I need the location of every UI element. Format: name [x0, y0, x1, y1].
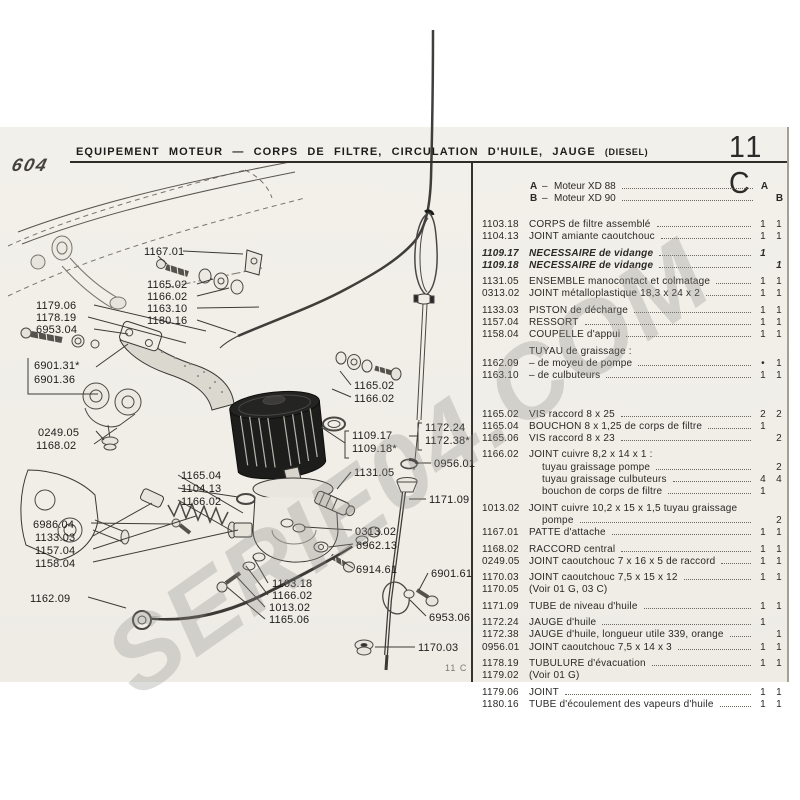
brand-604-logo: 604: [9, 155, 50, 176]
leader-dots: [657, 226, 751, 227]
qty-b: 1: [771, 370, 787, 381]
qty-a: •: [755, 358, 771, 369]
callout-1166.02: 1166.02: [272, 590, 312, 602]
qty-b: 4: [771, 474, 787, 485]
callout-1172.38: 1172.38*: [425, 435, 470, 447]
part-ref: 1133.03: [479, 305, 529, 316]
qty-a: 1: [755, 219, 771, 230]
table-row: TUYAU de graissage :: [479, 346, 787, 357]
qty-b: 1: [771, 305, 787, 316]
part-ref: 1178.19: [479, 658, 529, 669]
callout-1166.02: 1166.02: [354, 393, 394, 405]
leader-dots: [638, 365, 751, 366]
legend-col-a: A: [757, 181, 772, 193]
part-desc: VIS raccord 8 x 23: [529, 433, 615, 444]
part-desc: – de moyeu de pompe: [529, 358, 632, 369]
part-desc: (Voir 01 G, 03 C): [529, 584, 607, 595]
callout-1166.02: 1166.02: [147, 291, 187, 303]
qty-b: 1: [771, 629, 787, 640]
engine-legend: A – Moteur XD 88 A B – Moteur XD 90 B: [530, 181, 787, 205]
part-desc: JOINT cuivre 10,2 x 15 x 1,5 tuyau grais…: [529, 503, 738, 514]
part-desc: JAUGE d'huile: [529, 617, 596, 628]
leader-dots: [652, 665, 751, 666]
leader-dots: [678, 649, 751, 650]
table-row: 1178.19 TUBULURE d'évacuation 1 1: [479, 658, 787, 669]
part-ref: 1103.18: [479, 219, 529, 230]
central-raccord: [83, 383, 141, 450]
table-row: tuyau graissage culbuteurs 4 4: [479, 474, 787, 485]
qty-a: 1: [755, 687, 771, 698]
callout-6953.06: 6953.06: [429, 612, 470, 624]
part-desc: RACCORD central: [529, 544, 615, 555]
callout-6986.04: 6986.04: [33, 519, 74, 531]
table-row: 1179.06 JOINT 1 1: [479, 687, 787, 698]
footer-section-code: 11 C: [445, 663, 467, 673]
part-ref: 1162.09: [479, 358, 529, 369]
callout-1165.04: 1165.04: [181, 470, 221, 482]
qty-a: 1: [755, 601, 771, 612]
part-desc: PISTON de décharge: [529, 305, 628, 316]
page-title-rest: CORPS DE FILTRE, CIRCULATION D'HUILE, JA…: [254, 146, 596, 158]
qty-a: 1: [755, 288, 771, 299]
table-row: 1163.10 – de culbuteurs 1 1: [479, 370, 787, 381]
leader-dots: [673, 481, 751, 482]
part-ref: 1166.02: [479, 449, 529, 460]
table-row: 1013.02 JOINT cuivre 10,2 x 15 x 1,5 tuy…: [479, 503, 787, 514]
callout-1133.03: 1133.03: [35, 532, 75, 544]
leader-dots: [565, 694, 751, 695]
legend-row-a: A – Moteur XD 88 A: [530, 181, 787, 193]
leader-dots: [580, 522, 751, 523]
part-desc: (Voir 01 G): [529, 670, 580, 681]
part-desc: JOINT caoutchouc 7,5 x 15 x 12: [529, 572, 678, 583]
qty-b: 1: [771, 288, 787, 299]
leader-dots: [656, 469, 751, 470]
column-divider: [471, 163, 473, 682]
part-ref: 1170.05: [479, 584, 529, 595]
table-row: 0313.02 JOINT métalloplastique 18,3 x 24…: [479, 288, 787, 299]
part-ref: 1168.02: [479, 544, 529, 555]
callout-1157.04: 1157.04: [35, 545, 75, 557]
part-ref: 1179.06: [479, 687, 529, 698]
legend-col-b: B: [772, 193, 787, 205]
page-title-suffix: (DIESEL): [605, 147, 648, 157]
leader-dots: [634, 312, 751, 313]
part-ref: 1165.06: [479, 433, 529, 444]
part-desc: JOINT métalloplastique 18,3 x 24 x 2: [529, 288, 700, 299]
callout-1162.09: 1162.09: [30, 593, 70, 605]
part-desc: JOINT caoutchouc 7 x 16 x 5 de raccord: [529, 556, 715, 567]
qty-b: 1: [771, 527, 787, 538]
qty-b: 1: [771, 544, 787, 555]
legend-label: Moteur XD 88: [554, 181, 616, 193]
legend-label: Moteur XD 90: [554, 193, 616, 205]
legend-dash: –: [542, 193, 554, 205]
part-ref: 1163.10: [479, 370, 529, 381]
part-desc: TUBE d'écoulement des vapeurs d'huile: [529, 699, 714, 710]
callout-6901.36: 6901.36: [34, 374, 75, 386]
table-row: 0956.01 JOINT caoutchouc 7,5 x 14 x 3 1 …: [479, 642, 787, 653]
qty-a: 1: [755, 556, 771, 567]
part-ref: 1109.17: [479, 248, 529, 259]
page-title-dash: —: [232, 146, 244, 158]
part-desc: TUBULURE d'évacuation: [529, 658, 646, 669]
part-ref: 1167.01: [479, 527, 529, 538]
qty-b: 1: [771, 231, 787, 242]
qty-a: 1: [755, 572, 771, 583]
qty-b: 1: [771, 276, 787, 287]
callout-1166.02: 1166.02: [181, 496, 221, 508]
part-desc: TUYAU de graissage :: [529, 346, 632, 357]
qty-a: 1: [755, 248, 771, 259]
qty-b: 2: [771, 409, 787, 420]
qty-a: 1: [755, 642, 771, 653]
callout-1180.16: 1180.16: [147, 315, 187, 327]
part-ref: 0249.05: [479, 556, 529, 567]
callout-1103.18: 1103.18: [272, 578, 312, 590]
part-desc: JOINT caoutchouc 7,5 x 14 x 3: [529, 642, 672, 653]
qty-a: 1: [755, 421, 771, 432]
part-desc: ENSEMBLE manocontact et colmatage: [529, 276, 710, 287]
qty-b: 1: [771, 317, 787, 328]
part-ref: 1157.04: [479, 317, 529, 328]
callout-1168.02: 1168.02: [36, 440, 76, 452]
part-ref: 1013.02: [479, 503, 529, 514]
callout-6953.04: 6953.04: [36, 324, 77, 336]
part-ref: 1165.04: [479, 421, 529, 432]
table-row: 1170.03 JOINT caoutchouc 7,5 x 15 x 12 1…: [479, 572, 787, 583]
qty-a: 1: [755, 486, 771, 497]
leader-dots: [644, 608, 751, 609]
qty-a: 1: [755, 617, 771, 628]
part-ref: 1109.18: [479, 260, 529, 271]
legend-key: B: [530, 193, 542, 205]
table-row: 1165.02 VIS raccord 8 x 25 2 2: [479, 409, 787, 420]
leader-dots: [668, 493, 751, 494]
part-desc: bouchon de corps de filtre: [529, 486, 662, 497]
table-row: 1131.05 ENSEMBLE manocontact et colmatag…: [479, 276, 787, 287]
qty-b: 1: [771, 572, 787, 583]
plug-coupelle: [228, 522, 252, 538]
qty-b: 1: [771, 699, 787, 710]
callout-1013.02: 1013.02: [269, 602, 310, 614]
qty-b: 1: [771, 687, 787, 698]
part-desc: BOUCHON 8 x 1,25 de corps de filtre: [529, 421, 702, 432]
qty-b: 2: [771, 515, 787, 526]
leader-dots: [622, 200, 753, 201]
table-row: 1109.18 NECESSAIRE de vidange 1: [479, 260, 787, 271]
leader-dots: [661, 238, 751, 239]
table-row: 1171.09 TUBE de niveau d'huile 1 1: [479, 601, 787, 612]
qty-b: 2: [771, 462, 787, 473]
part-desc: tuyau graissage pompe: [529, 462, 650, 473]
qty-b: 1: [771, 260, 787, 271]
leader-dots: [706, 295, 751, 296]
table-row: 1168.02 RACCORD central 1 1: [479, 544, 787, 555]
part-desc: pompe: [529, 515, 574, 526]
qty-a: 1: [755, 305, 771, 316]
legend-key: A: [530, 181, 542, 193]
oil-vapor-pipe: [220, 30, 433, 348]
leader-dots: [708, 428, 751, 429]
leader-dots: [659, 267, 751, 268]
callout-1170.03: 1170.03: [418, 642, 458, 654]
table-row: 1180.16 TUBE d'écoulement des vapeurs d'…: [479, 699, 787, 710]
part-desc: JOINT: [529, 687, 559, 698]
table-row: 1167.01 PATTE d'attache 1 1: [479, 527, 787, 538]
part-desc: JAUGE d'huile, longueur utile 339, orang…: [529, 629, 724, 640]
qty-a: 1: [755, 544, 771, 555]
callout-6962.13: 6962.13: [356, 540, 397, 552]
page-title-main: EQUIPEMENT MOTEUR: [76, 146, 223, 158]
callout-1131.05: 1131.05: [354, 467, 394, 479]
part-ref: 1171.09: [479, 601, 529, 612]
part-desc: NECESSAIRE de vidange: [529, 260, 653, 271]
leader-dots: [622, 188, 753, 189]
callout-1179.06: 1179.06: [36, 300, 76, 312]
leader-dots: [716, 283, 751, 284]
callout-1178.19: 1178.19: [36, 312, 76, 324]
leader-dots: [720, 706, 751, 707]
part-desc: TUBE de niveau d'huile: [529, 601, 638, 612]
table-row: 1157.04 RESSORT 1 1: [479, 317, 787, 328]
part-desc: JOINT amiante caoutchouc: [529, 231, 655, 242]
callout-1109.17: 1109.17: [352, 430, 392, 442]
callout-1165.02: 1165.02: [354, 380, 394, 392]
qty-a: 1: [755, 231, 771, 242]
callout-0249.05: 0249.05: [38, 427, 79, 439]
callout-1165.02: 1165.02: [147, 279, 187, 291]
leader-dots: [626, 336, 751, 337]
qty-a: 4: [755, 474, 771, 485]
callout-0313.02: 0313.02: [355, 526, 396, 538]
drain-gasket-ring-inner: [328, 421, 340, 428]
qty-b: 1: [771, 642, 787, 653]
callout-1163.10: 1163.10: [147, 303, 187, 315]
part-ref: 1172.24: [479, 617, 529, 628]
part-ref: 1131.05: [479, 276, 529, 287]
part-ref: 1172.38: [479, 629, 529, 640]
callout-1158.04: 1158.04: [35, 558, 75, 570]
part-ref: 1104.13: [479, 231, 529, 242]
leader-dots: [684, 579, 751, 580]
table-row: 0249.05 JOINT caoutchouc 7 x 16 x 5 de r…: [479, 556, 787, 567]
qty-a: 1: [755, 276, 771, 287]
table-row: 1165.06 VIS raccord 8 x 23 2: [479, 433, 787, 444]
table-row: 1170.05 (Voir 01 G, 03 C): [479, 584, 787, 595]
table-row: 1162.09 – de moyeu de pompe • 1: [479, 358, 787, 369]
callout-6901.61: 6901.61: [431, 568, 472, 580]
leader-dots: [612, 534, 751, 535]
callout-1172.24: 1172.24: [425, 422, 465, 434]
table-row: 1109.17 NECESSAIRE de vidange 1: [479, 248, 787, 259]
table-row: 1133.03 PISTON de décharge 1 1: [479, 305, 787, 316]
qty-a: 1: [755, 370, 771, 381]
qty-b: 1: [771, 219, 787, 230]
leader-dots: [721, 563, 751, 564]
qty-b: 1: [771, 556, 787, 567]
raccord-bolt-washers: [336, 352, 401, 380]
qty-a: 1: [755, 699, 771, 710]
part-ref: 1179.02: [479, 670, 529, 681]
part-desc: JOINT cuivre 8,2 x 14 x 1 :: [529, 449, 653, 460]
callout-6914.61: 6914.61: [356, 564, 397, 576]
table-row: 1166.02 JOINT cuivre 8,2 x 14 x 1 :: [479, 449, 787, 460]
header-rule: [70, 161, 787, 163]
parts-list: 1103.18 CORPS de filtre assemblé 1 1 110…: [479, 218, 787, 710]
table-row: 1179.02 (Voir 01 G): [479, 670, 787, 681]
part-ref: 0313.02: [479, 288, 529, 299]
part-desc: tuyau graissage culbuteurs: [529, 474, 667, 485]
callout-1165.06: 1165.06: [269, 614, 309, 626]
part-desc: COUPELLE d'appui: [529, 329, 620, 340]
qty-b: 1: [771, 601, 787, 612]
table-row: tuyau graissage pompe 2: [479, 462, 787, 473]
table-row: bouchon de corps de filtre 1: [479, 486, 787, 497]
part-desc: VIS raccord 8 x 25: [529, 409, 615, 420]
qty-a: 1: [755, 527, 771, 538]
part-ref: 1170.03: [479, 572, 529, 583]
qty-b: 1: [771, 358, 787, 369]
table-row: 1103.18 CORPS de filtre assemblé 1 1: [479, 219, 787, 230]
part-desc: CORPS de filtre assemblé: [529, 219, 651, 230]
leader-dots: [621, 416, 751, 417]
callout-0956.01: 0956.01: [434, 458, 475, 470]
qty-b: 1: [771, 658, 787, 669]
part-ref: 1180.16: [479, 699, 529, 710]
legend-dash: –: [542, 181, 554, 193]
qty-a: 2: [755, 409, 771, 420]
qty-a: 1: [755, 317, 771, 328]
leader-dots: [621, 551, 751, 552]
callout-1167.01: 1167.01: [144, 246, 184, 258]
leader-dots: [606, 377, 751, 378]
table-row: 1165.04 BOUCHON 8 x 1,25 de corps de fil…: [479, 421, 787, 432]
qty-a: 1: [755, 329, 771, 340]
callout-1104.13: 1104.13: [181, 483, 221, 495]
part-desc: NECESSAIRE de vidange: [529, 248, 653, 259]
leader-dots: [602, 624, 751, 625]
leader-dots: [659, 255, 751, 256]
part-ref: 0956.01: [479, 642, 529, 653]
leader-dots: [621, 440, 751, 441]
table-row: 1104.13 JOINT amiante caoutchouc 1 1: [479, 231, 787, 242]
legend-row-b: B – Moteur XD 90 B: [530, 193, 787, 205]
oil-filter-canister: [228, 388, 327, 483]
part-desc: – de culbuteurs: [529, 370, 600, 381]
qty-a: 1: [755, 658, 771, 669]
callout-1109.18: 1109.18*: [352, 443, 397, 455]
callout-6901.31: 6901.31*: [34, 360, 80, 372]
part-desc: PATTE d'attache: [529, 527, 606, 538]
table-row: pompe 2: [479, 515, 787, 526]
part-desc: RESSORT: [529, 317, 579, 328]
table-row: 1172.24 JAUGE d'huile 1: [479, 617, 787, 628]
qty-b: 1: [771, 329, 787, 340]
table-row: 1158.04 COUPELLE d'appui 1 1: [479, 329, 787, 340]
page-title: EQUIPEMENT MOTEUR — CORPS DE FILTRE, CIR…: [76, 146, 648, 158]
part-ref: 1165.02: [479, 409, 529, 420]
callout-1171.09: 1171.09: [429, 494, 469, 506]
leader-dots: [585, 324, 751, 325]
qty-b: 2: [771, 433, 787, 444]
part-ref: 1158.04: [479, 329, 529, 340]
table-row: 1172.38 JAUGE d'huile, longueur utile 33…: [479, 629, 787, 640]
drain-gasket-ring: [323, 418, 345, 431]
leader-dots: [730, 636, 751, 637]
